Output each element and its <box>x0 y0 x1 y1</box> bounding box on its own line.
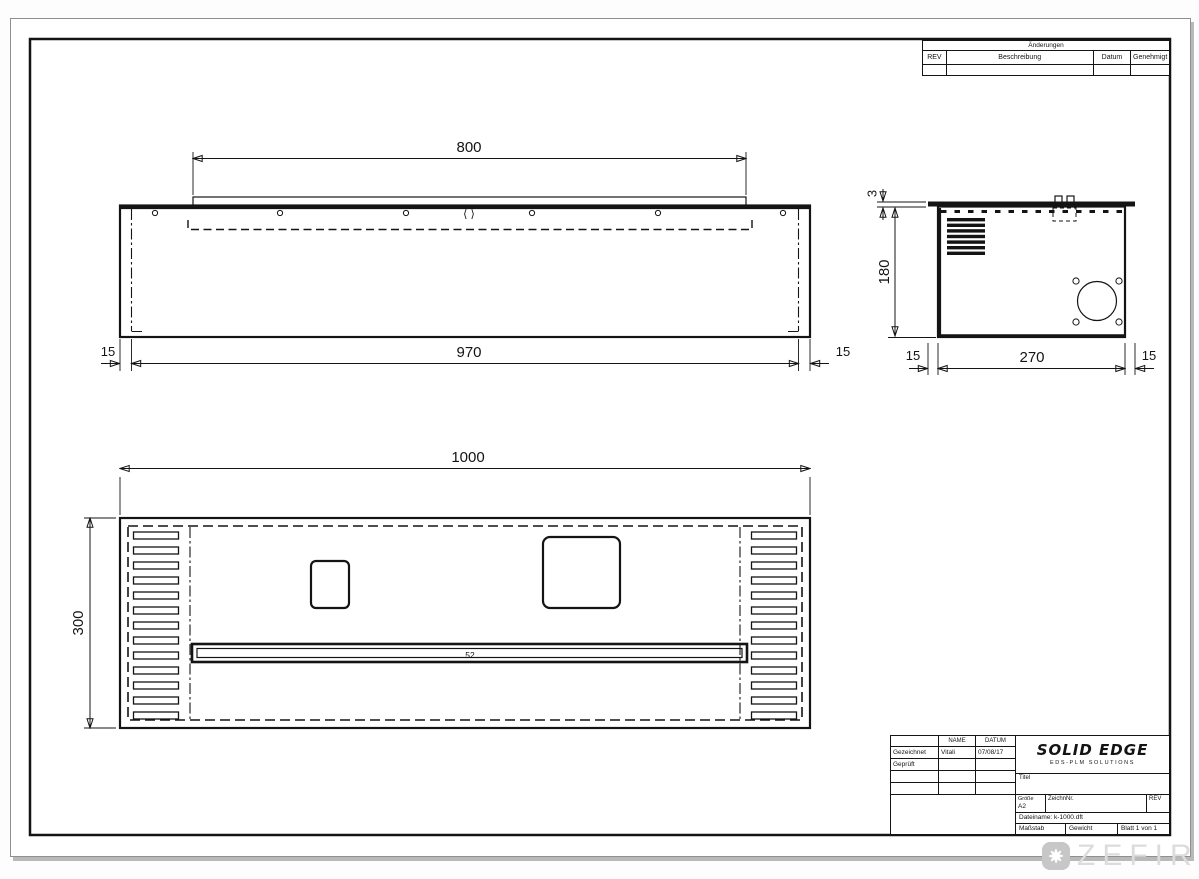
title-block-main: SOLID EDGE EDS-PLM SOLUTIONS Titel Größe… <box>1016 736 1169 834</box>
side-vent-grille <box>947 218 985 255</box>
name-header: NAME <box>939 736 976 746</box>
revision-table-title: Änderungen <box>923 41 1169 51</box>
dim-side-depth: 270 15 15 <box>906 343 1156 375</box>
svg-text:800: 800 <box>456 139 481 156</box>
scale-field: Maßstab <box>1016 824 1066 834</box>
svg-text:1000: 1000 <box>451 449 484 466</box>
plan-right-louvers <box>752 532 797 719</box>
title-block-notes-area <box>891 795 1015 834</box>
plan-view: 52 1000 300 <box>70 449 810 728</box>
svg-text:180: 180 <box>876 259 893 284</box>
dim-front-top-width: 800 <box>193 139 746 195</box>
svg-text:52: 52 <box>465 650 475 660</box>
plan-cutout-small <box>311 561 349 608</box>
plan-left-louvers <box>134 532 179 719</box>
side-fan-opening <box>1073 278 1122 325</box>
svg-text:270: 270 <box>1019 349 1044 366</box>
watermark: ZEFIRE <box>1042 841 1199 871</box>
scale-weight-sheet-row: Maßstab Gewicht Blatt 1 von 1 <box>1016 824 1169 834</box>
revision-col-rev: REV <box>923 51 947 64</box>
revision-col-approved: Genehmigt <box>1131 51 1169 64</box>
plan-cutout-large <box>543 537 620 608</box>
revision-col-date: Datum <box>1094 51 1132 64</box>
svg-text:15: 15 <box>906 348 920 363</box>
drawn-label: Gezeichnet <box>891 747 939 758</box>
pinwheel-icon <box>1042 842 1070 870</box>
side-top-terminals <box>1053 196 1076 221</box>
side-view: 3 180 270 15 15 <box>865 189 1157 375</box>
revision-table-header-row: REV Beschreibung Datum Genehmigt <box>923 51 1169 65</box>
checked-label: Geprüft <box>891 759 939 770</box>
revision-table-empty-row <box>923 65 1169 75</box>
solid-edge-logo: SOLID EDGE EDS-PLM SOLUTIONS <box>1016 736 1169 774</box>
dim-front-bottom-width: 970 15 15 <box>101 339 850 371</box>
logo-title: SOLID EDGE <box>1016 741 1169 759</box>
front-view: ⟨ ⟩ 800 970 15 15 <box>101 139 850 371</box>
filename-field: Dateiname: k-1000.dft <box>1016 813 1169 824</box>
logo-subtitle: EDS-PLM SOLUTIONS <box>1016 760 1169 766</box>
title-block-signatures: NAME DATUM Gezeichnet Vitali 07/08/17 Ge… <box>891 736 1016 834</box>
drawn-date: 07/08/17 <box>976 747 1015 758</box>
dim-plan-width: 1000 <box>120 449 810 515</box>
svg-text:300: 300 <box>70 610 87 635</box>
watermark-text: ZEFIRE <box>1077 841 1199 871</box>
sheet-count-field: Blatt 1 von 1 <box>1118 824 1169 834</box>
svg-text:15: 15 <box>1142 348 1156 363</box>
cad-drawing-viewer: ⟨ ⟩ 800 970 15 15 <box>0 0 1199 879</box>
svg-text:3: 3 <box>865 190 880 197</box>
svg-text:970: 970 <box>456 344 481 361</box>
title-block: NAME DATUM Gezeichnet Vitali 07/08/17 Ge… <box>890 735 1170 835</box>
date-header: DATUM <box>976 736 1015 746</box>
svg-text:15: 15 <box>836 344 850 359</box>
revision-col-description: Beschreibung <box>947 51 1094 64</box>
drawing-number-field: ZeichnNr. <box>1046 795 1147 812</box>
front-center-mark: ⟨ ⟩ <box>463 209 475 221</box>
rev-field: REV <box>1147 795 1169 812</box>
dim-plan-depth: 300 <box>70 518 116 728</box>
sheet-size-field: Größe A2 <box>1016 795 1046 812</box>
revision-table: Änderungen REV Beschreibung Datum Genehm… <box>922 40 1170 76</box>
weight-field: Gewicht <box>1066 824 1118 834</box>
plan-burner-slot: 52 <box>192 644 747 662</box>
dim-side-height: 180 <box>876 208 936 338</box>
size-row: Größe A2 ZeichnNr. REV <box>1016 795 1169 813</box>
title-field: Titel <box>1016 774 1169 795</box>
svg-text:15: 15 <box>101 344 115 359</box>
drawn-name: Vitali <box>939 747 976 758</box>
